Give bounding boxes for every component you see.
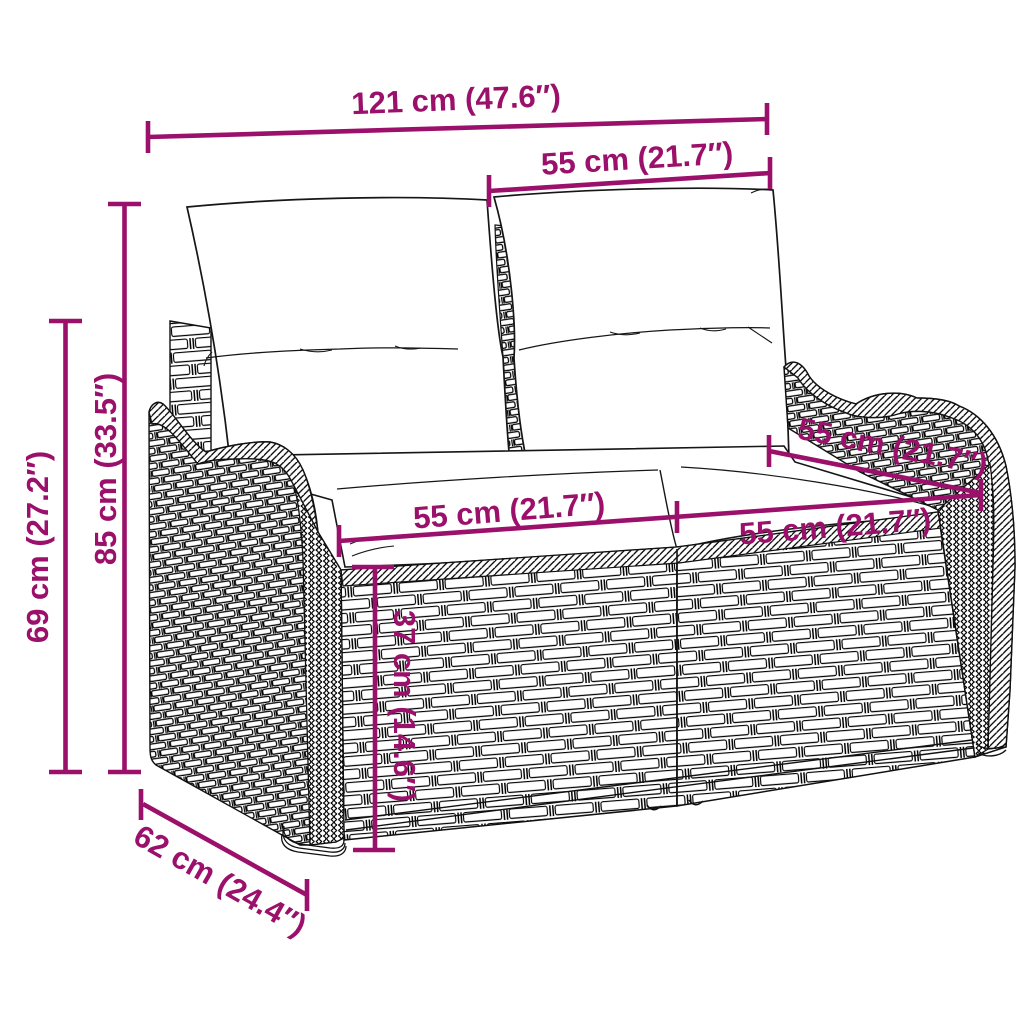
svg-text:69 cm (27.2″): 69 cm (27.2″) [20, 451, 55, 643]
svg-text:85 cm (33.5″): 85 cm (33.5″) [88, 373, 123, 565]
svg-text:37 cm (14.6″): 37 cm (14.6″) [387, 610, 422, 802]
